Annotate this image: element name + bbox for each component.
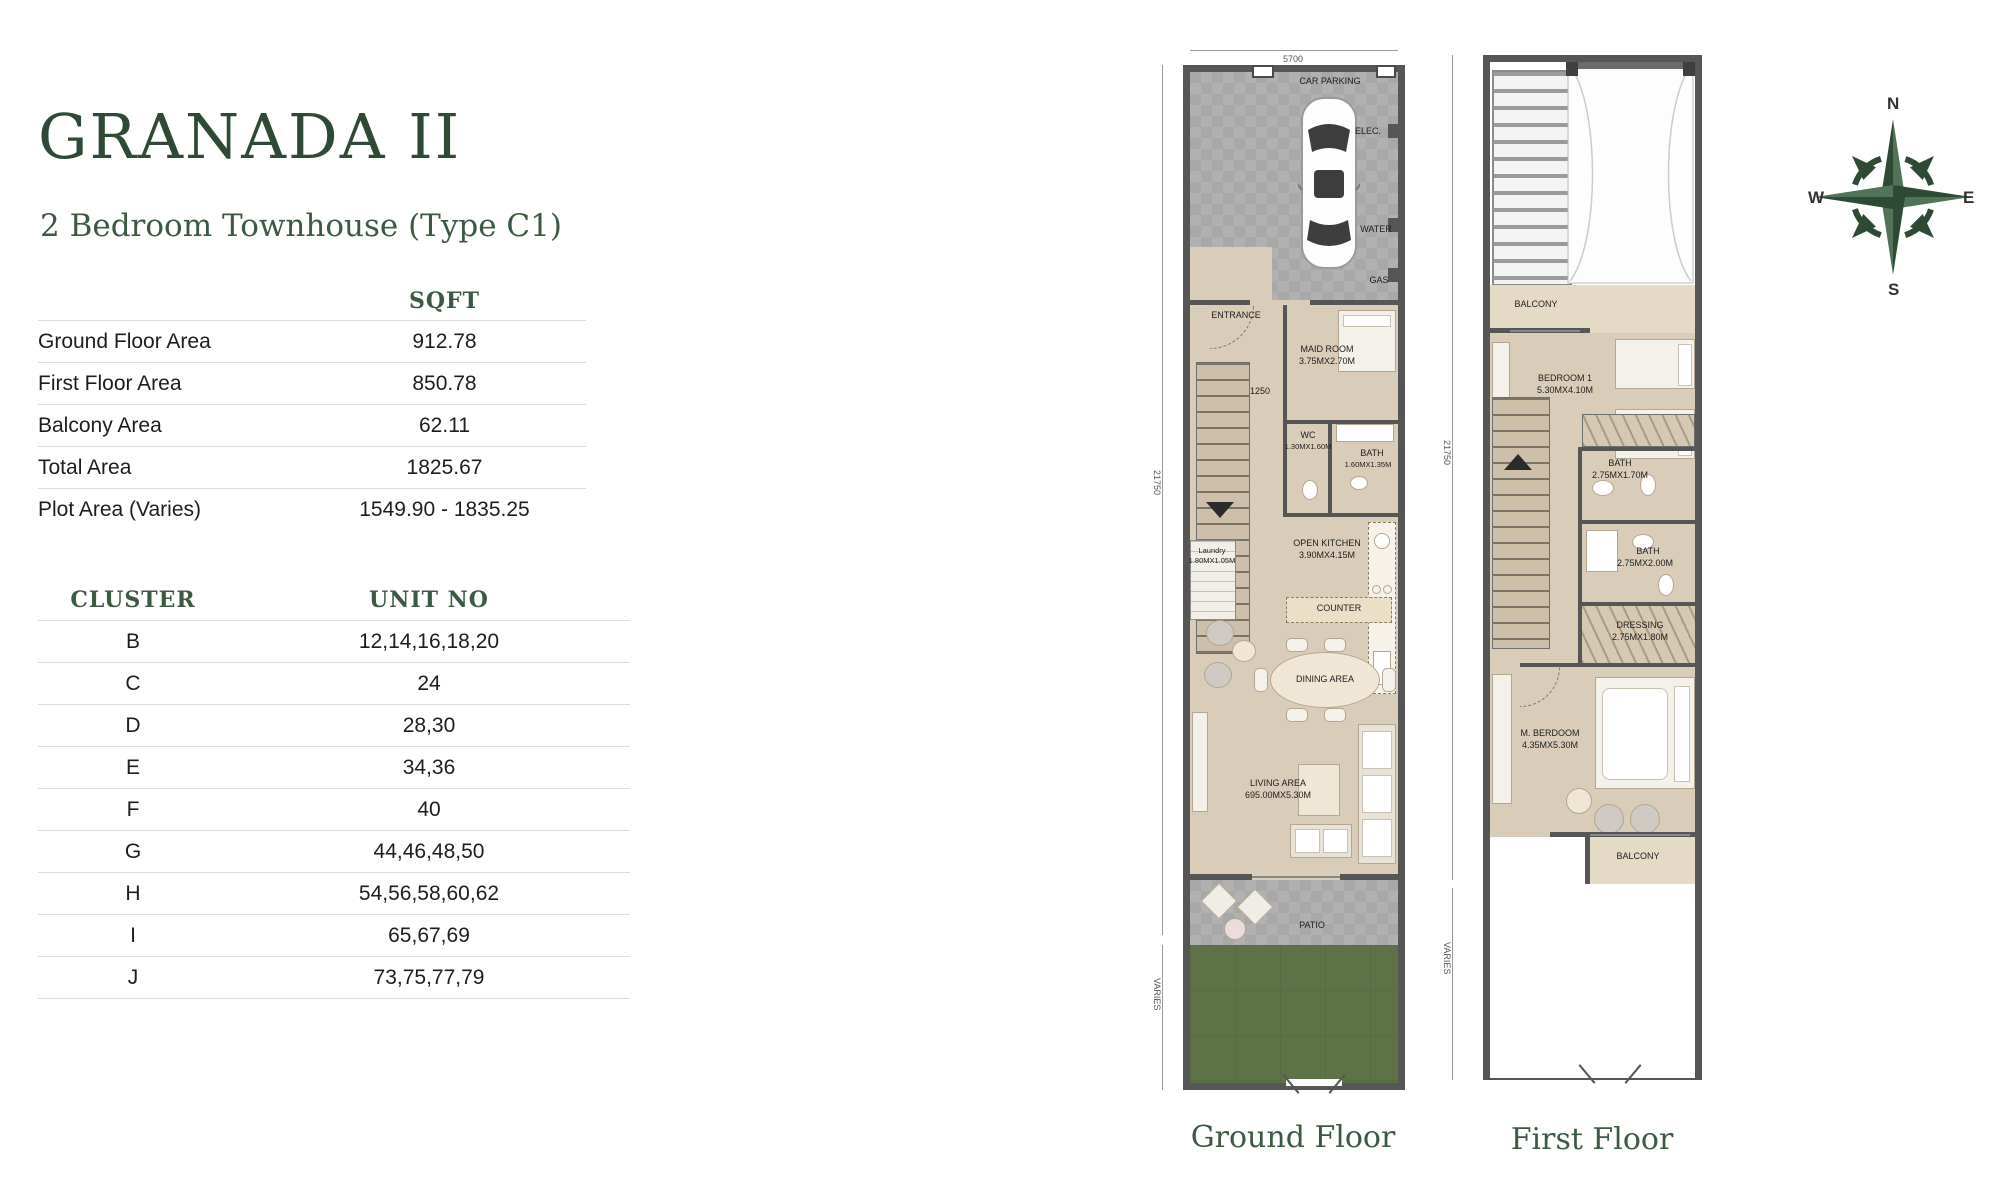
room-label-balcony-bottom: BALCONY [1616, 851, 1659, 863]
page-subtitle: 2 Bedroom Townhouse (Type C1) [40, 208, 562, 244]
closet [1582, 414, 1695, 447]
room-dim-laundry: 1.80MX1.05M [1189, 556, 1236, 566]
door-opening [1250, 300, 1310, 305]
room-label-water: WATER [1360, 224, 1392, 236]
room-dim-living: 695.00MX5.30M [1245, 790, 1311, 802]
dimension-line [1162, 945, 1163, 1090]
first-floor-plan: BALCONY BEDROOM 1 5.30MX4.10M BATH 2.75M… [1483, 55, 1702, 1080]
interior-wall [1283, 513, 1398, 517]
units-cell: 24 [228, 672, 630, 696]
interior-wall [1582, 447, 1695, 451]
area-table: SQFT Ground Floor Area 912.78 First Floo… [38, 282, 586, 530]
chair [1286, 638, 1308, 652]
room-label-patio: PATIO [1299, 920, 1325, 932]
compass-star-icon [1808, 94, 1978, 298]
window [1376, 65, 1396, 78]
chair [1254, 668, 1268, 692]
interior-wall [1582, 520, 1695, 524]
room-dim-bath1: 2.75MX1.70M [1592, 470, 1648, 482]
room-label-counter: COUNTER [1317, 603, 1362, 615]
units-cell: 73,75,77,79 [228, 966, 630, 990]
gas-stub [1388, 268, 1398, 282]
room-label-car-parking: CAR PARKING [1299, 76, 1360, 88]
units-cell: 12,14,16,18,20 [228, 630, 630, 654]
cluster-table: CLUSTER UNIT NO B 12,14,16,18,20 C 24 D … [38, 580, 630, 999]
car-icon [1298, 94, 1360, 272]
compass-e-label: E [1963, 188, 1974, 208]
dimension-label: 5700 [1283, 54, 1303, 64]
table-row: F 40 [38, 788, 630, 830]
cluster-cell: E [38, 756, 228, 780]
room-label-living: LIVING AREA [1250, 778, 1306, 790]
brochure-page: GRANADA II 2 Bedroom Townhouse (Type C1)… [0, 0, 2000, 1178]
room-label-dining: DINING AREA [1296, 674, 1354, 686]
cluster-cell: B [38, 630, 228, 654]
stairs-arrow [1206, 502, 1234, 518]
area-row-value: 62.11 [303, 414, 586, 438]
units-cell: 54,56,58,60,62 [228, 882, 630, 906]
interior-wall [1283, 420, 1287, 517]
first-floor-caption: First Floor [1467, 1122, 1717, 1157]
units-cell: 65,67,69 [228, 924, 630, 948]
table-row: E 34,36 [38, 746, 630, 788]
pouf [1206, 620, 1234, 646]
cluster-cell: F [38, 798, 228, 822]
room-label-laundry: Laundry [1198, 546, 1225, 556]
unitno-header: UNIT NO [228, 587, 630, 613]
shower [1586, 530, 1618, 572]
balcony-door [1590, 834, 1690, 836]
stairs-arrow [1504, 454, 1532, 470]
cluster-cell: C [38, 672, 228, 696]
area-row-value: 1549.90 - 1835.25 [303, 498, 586, 522]
table-row: D 28,30 [38, 704, 630, 746]
room-label-gas: GAS [1369, 275, 1388, 287]
interior-wall [1190, 874, 1252, 880]
elec-stub [1388, 124, 1398, 138]
table-row: I 65,67,69 [38, 914, 630, 956]
table-row: C 24 [38, 662, 630, 704]
area-table-header: SQFT [38, 282, 586, 320]
area-row-value: 850.78 [303, 372, 586, 396]
cluster-cell: H [38, 882, 228, 906]
compass-s-label: S [1888, 280, 1899, 300]
cluster-cell: J [38, 966, 228, 990]
units-cell: 40 [228, 798, 630, 822]
louver-screen [1492, 70, 1572, 286]
sink [1350, 476, 1368, 490]
room-dim-bath: 1.60MX1.35M [1345, 460, 1392, 470]
dimension-label: VARIES [1152, 978, 1162, 1010]
open-void [1490, 884, 1695, 1078]
area-row-value: 1825.67 [303, 456, 586, 480]
room-dim-bath2: 2.75MX2.00M [1617, 558, 1673, 570]
interior-wall [1328, 420, 1332, 517]
patio-table [1224, 918, 1246, 940]
loveseat [1290, 824, 1352, 858]
room-label-entrance: ENTRANCE [1211, 310, 1261, 322]
chair [1324, 708, 1346, 722]
canopy-shade [1566, 62, 1695, 285]
room-dim-dressing: 2.75MX1.80M [1612, 632, 1668, 644]
room-dim-kitchen: 3.90MX4.15M [1299, 550, 1355, 562]
window [1252, 65, 1274, 78]
sink [1592, 480, 1614, 496]
room-label-bath1: BATH [1608, 458, 1631, 470]
room-label-kitchen: OPEN KITCHEN [1293, 538, 1361, 550]
bed [1595, 677, 1695, 789]
table-bottom-line [38, 998, 630, 999]
chair [1324, 638, 1346, 652]
table-row: First Floor Area 850.78 [38, 362, 586, 404]
room-label-bath: BATH [1360, 448, 1383, 460]
compass-rose: N E S W [1808, 94, 1978, 298]
area-row-label: Balcony Area [38, 414, 303, 438]
ground-floor-plan: CAR PARKING ELEC. WATER GAS ENTRANCE MAI… [1183, 65, 1405, 1090]
area-row-value: 912.78 [303, 330, 586, 354]
area-row-label: Plot Area (Varies) [38, 498, 303, 522]
area-row-label: Ground Floor Area [38, 330, 303, 354]
units-cell: 28,30 [228, 714, 630, 738]
room-dim-wc: 1.30MX1.60M [1285, 442, 1332, 452]
table-row: Balcony Area 62.11 [38, 404, 586, 446]
table-row: H 54,56,58,60,62 [38, 872, 630, 914]
cluster-cell: G [38, 840, 228, 864]
table-row: Total Area 1825.67 [38, 446, 586, 488]
compass-n-label: N [1887, 94, 1899, 114]
cluster-cell: I [38, 924, 228, 948]
dimension-label: 21750 [1442, 440, 1452, 465]
dimension-label: VARIES [1442, 942, 1452, 974]
wardrobe [1492, 674, 1512, 804]
dimension-line [1452, 888, 1453, 1080]
room-dim-hall: 1250 [1250, 386, 1270, 398]
door-swing [1520, 667, 1560, 707]
balcony-door [1510, 330, 1580, 332]
ground-floor-caption: Ground Floor [1148, 1120, 1438, 1155]
units-cell: 34,36 [228, 756, 630, 780]
interior-wall [1283, 305, 1287, 422]
dimension-line [1452, 55, 1453, 880]
units-cell: 44,46,48,50 [228, 840, 630, 864]
sliding-door [1252, 876, 1340, 878]
table-row: J 73,75,77,79 [38, 956, 630, 998]
chair [1286, 708, 1308, 722]
cluster-header: CLUSTER [38, 587, 228, 613]
interior-wall [1340, 874, 1398, 880]
dimension-label: 21750 [1152, 470, 1162, 495]
dimension-line [1190, 50, 1398, 51]
pouf [1594, 804, 1624, 834]
area-row-label: First Floor Area [38, 372, 303, 396]
table-row: G 44,46,48,50 [38, 830, 630, 872]
pouf [1630, 804, 1660, 834]
room-dim-maid: 3.75MX2.70M [1299, 356, 1355, 368]
room-label-dressing: DRESSING [1616, 620, 1663, 632]
table-row: Ground Floor Area 912.78 [38, 320, 586, 362]
garden-area [1190, 945, 1398, 1083]
room-label-bedroom1: BEDROOM 1 [1538, 373, 1592, 385]
area-header-sqft: SQFT [303, 288, 586, 314]
dimension-line [1162, 65, 1163, 935]
tv-unit [1192, 712, 1208, 812]
room-label-wc: WC [1301, 430, 1316, 442]
room-label-master: M. BERDOOM [1520, 728, 1579, 740]
compass-w-label: W [1808, 188, 1824, 208]
table-row: Plot Area (Varies) 1549.90 - 1835.25 [38, 488, 586, 530]
pouf [1232, 640, 1256, 662]
room-dim-master: 4.35MX5.30M [1522, 740, 1578, 752]
sofa [1358, 724, 1396, 864]
table-row: B 12,14,16,18,20 [38, 620, 630, 662]
room-label-balcony-top: BALCONY [1514, 299, 1557, 311]
staircase [1492, 397, 1550, 649]
area-row-label: Total Area [38, 456, 303, 480]
toilet [1302, 480, 1318, 500]
cluster-cell: D [38, 714, 228, 738]
page-title: GRANADA II [38, 100, 461, 173]
toilet [1658, 574, 1674, 596]
cluster-table-header: CLUSTER UNIT NO [38, 580, 630, 620]
bathtub [1336, 424, 1394, 442]
room-dim-bedroom1: 5.30MX4.10M [1537, 385, 1593, 397]
chair [1382, 668, 1396, 692]
room-label-elec: ELEC. [1355, 126, 1381, 138]
room-label-maid: MAID ROOM [1301, 344, 1354, 356]
bed [1615, 339, 1695, 389]
room-label-bath2: BATH [1636, 546, 1659, 558]
entrance-porch [1190, 247, 1272, 305]
pouf [1204, 662, 1232, 688]
pouf [1566, 788, 1592, 814]
